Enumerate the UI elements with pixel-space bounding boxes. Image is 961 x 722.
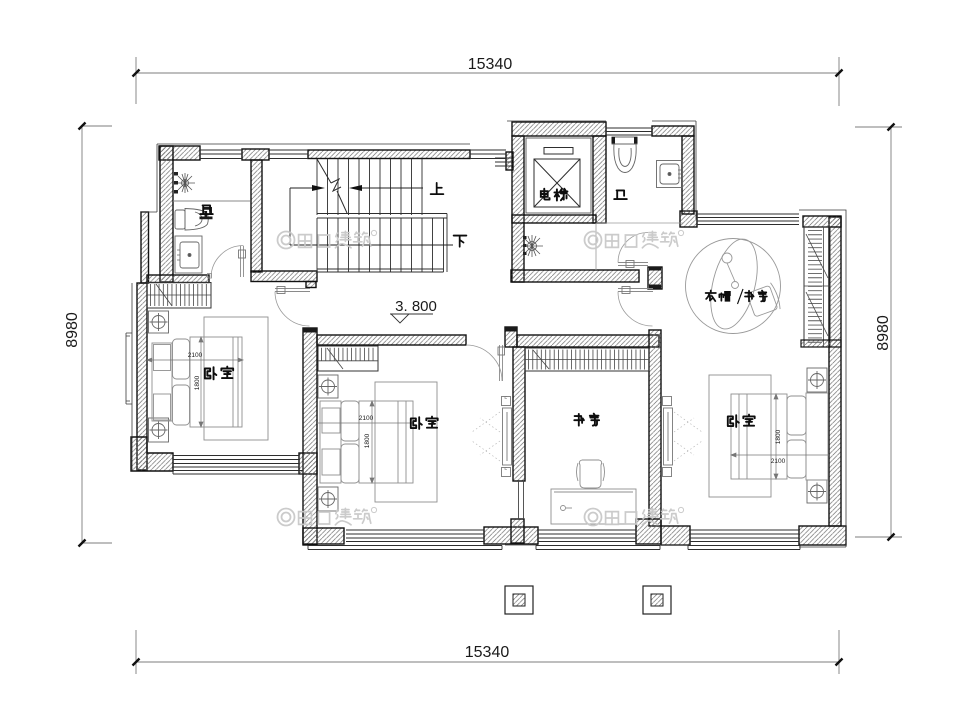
svg-text:8980: 8980 bbox=[875, 315, 892, 351]
svg-text:2100: 2100 bbox=[188, 352, 203, 359]
svg-text:8980: 8980 bbox=[64, 312, 81, 348]
svg-text:1800: 1800 bbox=[364, 433, 371, 448]
svg-text:15340: 15340 bbox=[465, 644, 510, 661]
svg-text:3. 800: 3. 800 bbox=[395, 298, 437, 315]
svg-text:2100: 2100 bbox=[359, 415, 374, 422]
svg-text:15340: 15340 bbox=[468, 56, 513, 73]
svg-text:1800: 1800 bbox=[775, 429, 782, 444]
svg-text:1800: 1800 bbox=[194, 375, 201, 390]
svg-text:2100: 2100 bbox=[771, 458, 786, 465]
